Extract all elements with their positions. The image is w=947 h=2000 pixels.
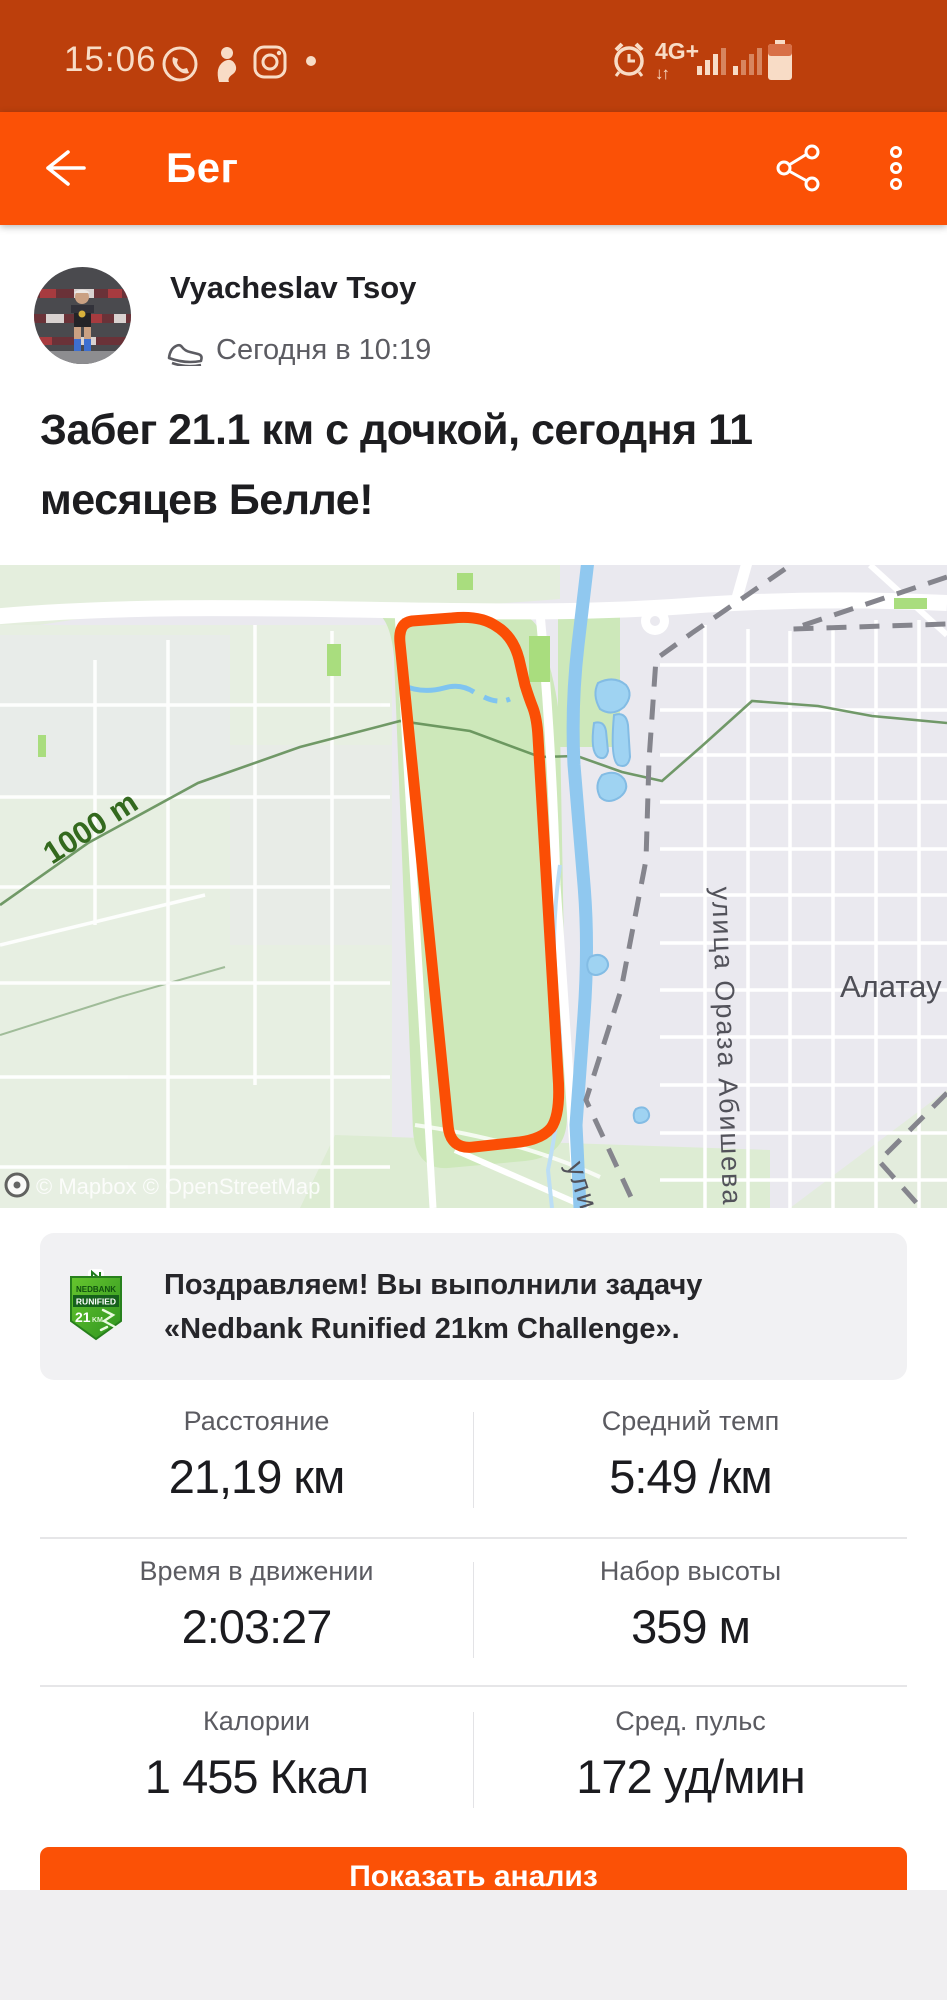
challenge-message: Поздравляем! Вы выполнили задачу «Nedban…: [164, 1263, 804, 1351]
nedbank-challenge-badge-icon: NEDBANK RUNIFIED 21 KM: [67, 1269, 125, 1343]
mapbox-logo-icon: [6, 1174, 28, 1196]
person-app-icon: [211, 44, 241, 84]
notification-dot-icon: [306, 56, 316, 66]
running-shoe-icon: [166, 336, 204, 366]
network-type-indicator: 4G+ ↓↑: [655, 40, 699, 82]
status-bar: 15:06 4G+ ↓↑: [0, 0, 947, 112]
whatsapp-icon: [160, 44, 200, 84]
signal-sim2-icon: [733, 46, 763, 76]
back-button[interactable]: [32, 140, 88, 196]
svg-text:21: 21: [75, 1309, 91, 1325]
activity-title: Забег 21.1 км с дочкой, сегодня 11 месяц…: [40, 396, 915, 535]
stat-calories: Калории1 455 Ккал: [40, 1706, 473, 1804]
battery-icon: [766, 40, 794, 82]
stat-elevation-gain: Набор высоты359 м: [474, 1556, 907, 1654]
android-nav-bar: [0, 1890, 947, 2000]
svg-text:KM: KM: [92, 1317, 103, 1324]
athlete-name[interactable]: Vyacheslav Tsoy: [170, 270, 416, 306]
stat-moving-time: Время в движении2:03:27: [40, 1556, 473, 1654]
challenge-card[interactable]: NEDBANK RUNIFIED 21 KM Поздравляем! Вы в…: [40, 1233, 907, 1380]
stat-avg-heart-rate: Сред. пульс172 уд/мин: [474, 1706, 907, 1804]
stat-divider: [473, 1412, 474, 1508]
stat-distance: Расстояние21,19 км: [40, 1406, 473, 1504]
alarm-icon: [608, 38, 650, 80]
avatar[interactable]: [34, 267, 131, 364]
stat-divider: [40, 1537, 907, 1539]
stat-divider: [473, 1562, 474, 1658]
share-button[interactable]: [770, 140, 826, 196]
svg-text:RUNIFIED: RUNIFIED: [76, 1297, 116, 1307]
stat-divider: [473, 1712, 474, 1808]
overflow-menu-button[interactable]: [868, 140, 924, 196]
signal-sim1-icon: [697, 46, 727, 76]
app-bar: Бег: [0, 112, 947, 225]
activity-timestamp: Сегодня в 10:19: [216, 334, 431, 367]
clock-text: 15:06: [64, 40, 157, 80]
strava-activity-screen: 15:06 4G+ ↓↑: [0, 0, 947, 2000]
instagram-icon: [252, 44, 288, 80]
stat-avg-pace: Средний темп5:49 /км: [474, 1406, 907, 1504]
district-label: Алатау: [840, 969, 942, 1004]
map-attribution: © Mapbox © OpenStreetMap: [36, 1174, 320, 1199]
stat-divider: [40, 1685, 907, 1687]
page-title: Бег: [166, 144, 239, 192]
svg-text:NEDBANK: NEDBANK: [76, 1285, 116, 1294]
route-map[interactable]: 1000 m улица Ораза Абишева ули Алатау © …: [0, 565, 947, 1208]
activity-meta: Сегодня в 10:19: [166, 334, 431, 367]
